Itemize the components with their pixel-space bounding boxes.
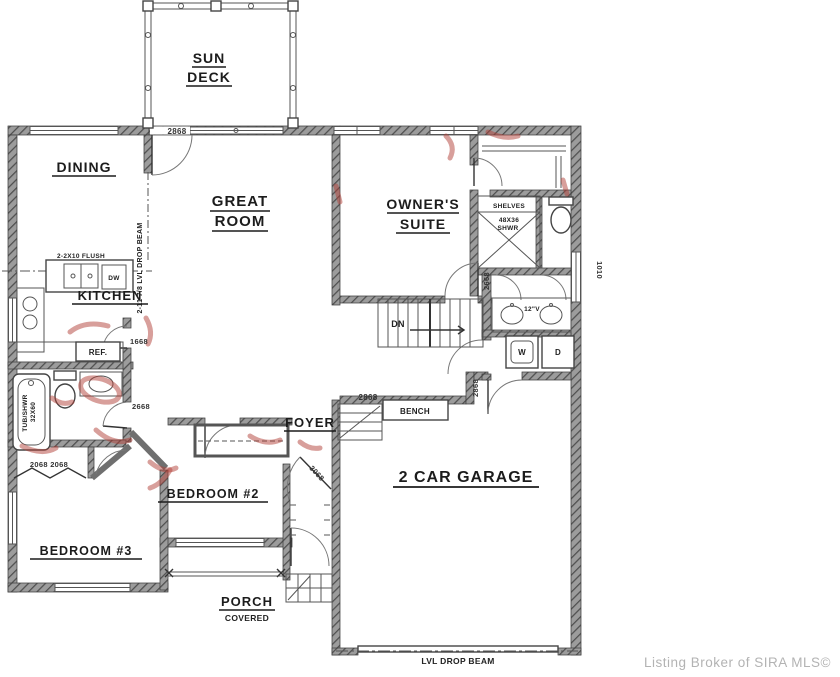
room-label-foyer: FOYER: [285, 415, 335, 430]
window-bedroom3-left: [9, 492, 17, 544]
garage-features: [336, 400, 578, 652]
vanity-size-label: 12"V: [524, 306, 540, 313]
floor-plan-page: SUN DECK DINING GREAT ROOM OWNER'S SUITE…: [0, 0, 840, 677]
dim-mud-hall-door: 2868: [471, 379, 480, 397]
dryer-label: D: [555, 348, 561, 357]
room-label-bedroom3: BEDROOM #3: [40, 544, 133, 558]
room-label-porch: PORCH: [221, 594, 273, 609]
dn-label: DN: [391, 319, 405, 329]
mls-watermark: Listing Broker of SIRA MLS©: [644, 655, 831, 670]
window-deck-slider: [190, 127, 283, 134]
toilet-tank: [54, 371, 76, 380]
dim-deck-door: 2868: [168, 127, 187, 136]
window-laundry-1010: [572, 252, 581, 302]
owner-bath-fixtures: [478, 146, 573, 332]
kitchen-fixtures: [2, 172, 152, 362]
front-door: [291, 528, 329, 566]
water-closet-doors: [496, 275, 566, 300]
bed3-closet-bifold-doors: [14, 468, 86, 478]
room-label-owners-suite-1: OWNER'S: [386, 196, 459, 212]
dim-bed3-closet: 2068 2068: [30, 460, 68, 469]
double-vanity: [492, 298, 571, 332]
dim-bath-door: 2668: [132, 402, 150, 411]
floor-plan-drawing: SUN DECK DINING GREAT ROOM OWNER'S SUITE…: [0, 0, 840, 677]
entry-3068-door: [287, 457, 331, 500]
room-label-bedroom2: BEDROOM #2: [167, 487, 260, 501]
dw-label: DW: [108, 275, 120, 282]
porch-features: [165, 505, 332, 602]
ref-label: REF.: [89, 348, 108, 357]
tub-label-line1: TUB/SHWR: [22, 394, 29, 431]
window-bedroom3-bottom: [55, 584, 130, 592]
tub-label-line2: 32X60: [30, 402, 37, 422]
garage-beam-note: LVL DROP BEAM: [421, 656, 494, 666]
shower-label: SHWR: [497, 225, 518, 232]
room-label-sun-deck-2: DECK: [187, 69, 231, 85]
room-label-great-room-2: ROOM: [215, 213, 266, 230]
vanity-sink-left: [501, 306, 523, 324]
window-owners-suite-1: [334, 127, 380, 135]
shower-size-label: 48X36: [499, 217, 519, 224]
room-label-porch-covered: COVERED: [225, 613, 269, 623]
window-dining: [30, 127, 118, 135]
room-label-sun-deck-1: SUN: [193, 50, 226, 66]
bench-label: BENCH: [400, 407, 430, 416]
washer-label: W: [518, 348, 526, 357]
hall-bath-door: [103, 402, 127, 428]
room-label-owners-suite-2: SUITE: [400, 216, 446, 232]
laundry-door: [448, 340, 482, 374]
vanity-sink-right: [540, 306, 562, 324]
owner-toilet-tank: [549, 197, 573, 205]
garage-service-door: [488, 380, 522, 414]
dim-pantry-door: 1668: [130, 337, 148, 346]
flush-beam-note: 2-2X10 FLUSH: [57, 253, 105, 260]
dim-entry-door: 3068: [307, 464, 326, 483]
window-kitchen-sink: [9, 298, 17, 342]
shelves-label: SHELVES: [493, 203, 525, 210]
window-bedroom2-bottom: [176, 539, 264, 547]
dim-suite-door: 2668: [482, 272, 491, 290]
owner-toilet-bowl: [551, 207, 571, 233]
dim-laundry-window: 1010: [595, 261, 604, 279]
fixture-labels: BENCH REF. DW DN W D SHELVES 48X36 SHWR …: [22, 203, 561, 432]
room-label-garage: 2 CAR GARAGE: [399, 469, 534, 486]
dim-hall-opening: 2868: [359, 393, 378, 402]
window-owners-suite-2: [430, 127, 478, 135]
room-label-dining: DINING: [57, 159, 112, 175]
laundry-fixtures: [506, 336, 574, 368]
room-label-great-room-1: GREAT: [212, 193, 268, 210]
room-label-kitchen: KITCHEN: [78, 288, 143, 303]
drop-beam-note-vertical: 2-11 7/8 LVL DROP BEAM: [137, 222, 144, 313]
